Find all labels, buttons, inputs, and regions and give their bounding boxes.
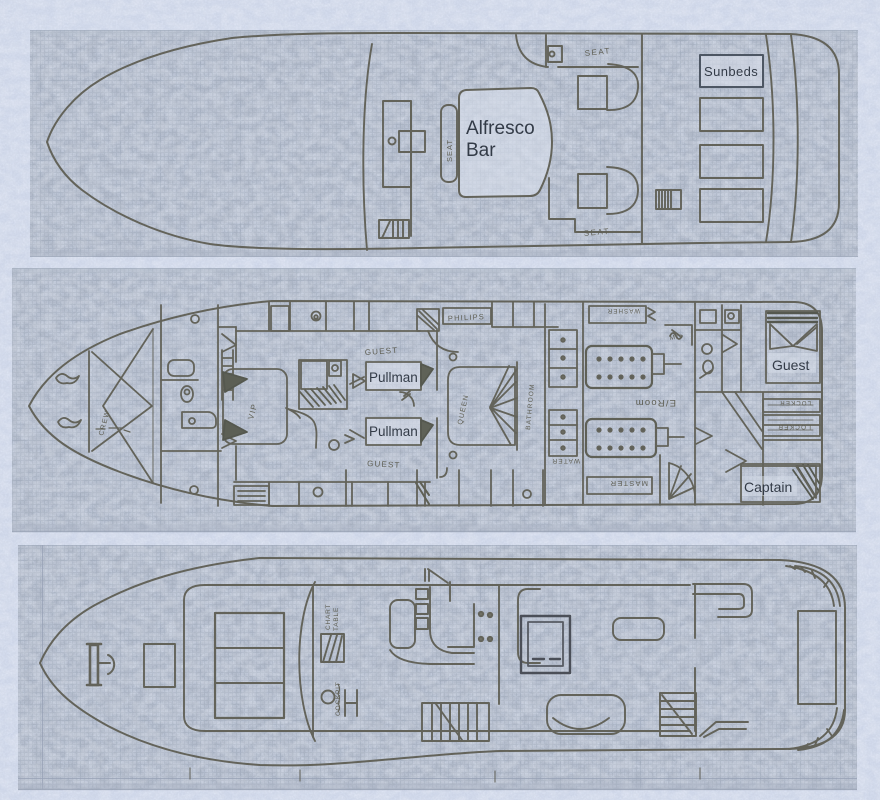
svg-text:MASTER: MASTER [610, 479, 648, 488]
svg-text:LOCKER: LOCKER [779, 399, 811, 405]
svg-text:WASHER: WASHER [607, 307, 640, 313]
svg-text:TABLE: TABLE [333, 607, 340, 631]
svg-text:E/Room: E/Room [634, 397, 676, 408]
svg-text:GUEST: GUEST [367, 459, 401, 470]
svg-text:CHART: CHART [325, 604, 332, 630]
svg-text:WATER: WATER [551, 457, 580, 464]
svg-text:LOCKER: LOCKER [777, 423, 811, 430]
svg-text:COCKPIT: COCKPIT [335, 682, 342, 717]
svg-text:SEAT: SEAT [445, 139, 454, 162]
